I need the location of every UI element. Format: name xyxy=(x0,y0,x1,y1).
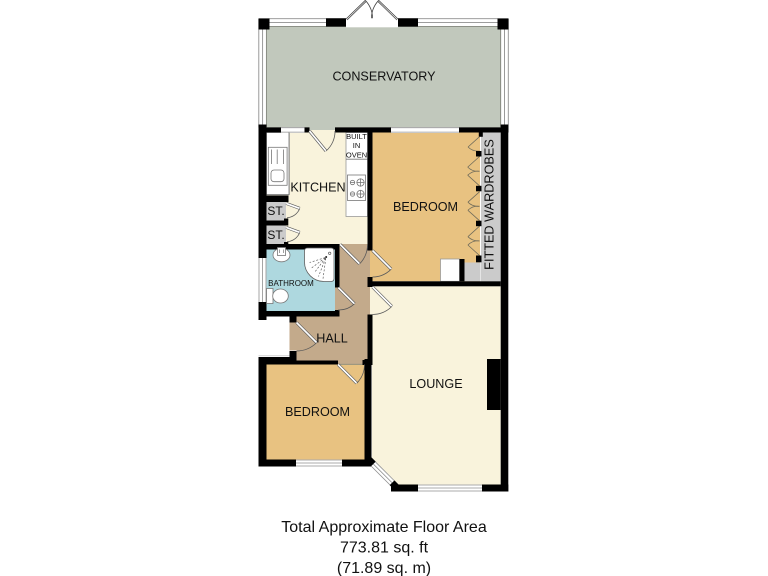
svg-text:CONSERVATORY: CONSERVATORY xyxy=(332,70,436,84)
svg-text:773.81 sq. ft: 773.81 sq. ft xyxy=(340,540,429,557)
svg-text:OVEN: OVEN xyxy=(346,151,367,160)
svg-text:BUILT: BUILT xyxy=(346,132,367,141)
svg-text:BEDROOM: BEDROOM xyxy=(285,405,350,419)
svg-text:LOUNGE: LOUNGE xyxy=(409,377,462,391)
svg-text:BATHROOM: BATHROOM xyxy=(268,279,314,288)
svg-text:FITTED WARDROBES: FITTED WARDROBES xyxy=(483,139,497,270)
svg-text:ST.: ST. xyxy=(267,204,284,218)
svg-text:Total Approximate Floor Area: Total Approximate Floor Area xyxy=(281,519,487,536)
svg-text:BEDROOM: BEDROOM xyxy=(393,200,458,214)
svg-text:IN: IN xyxy=(353,141,361,150)
svg-text:ST.: ST. xyxy=(267,228,284,242)
svg-text:(71.89 sq. m): (71.89 sq. m) xyxy=(337,560,431,576)
svg-text:HALL: HALL xyxy=(316,331,348,345)
svg-text:KITCHEN: KITCHEN xyxy=(290,180,345,194)
